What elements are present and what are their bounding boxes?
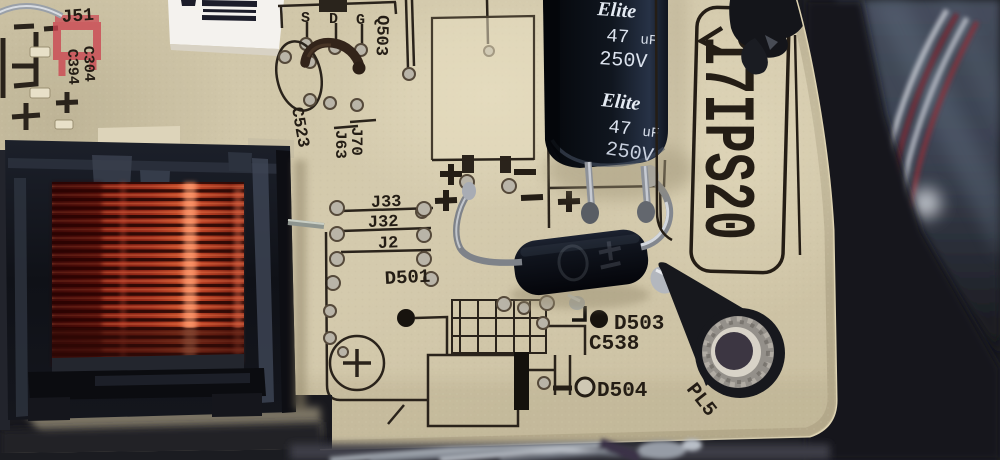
svg-text:D501: D501 xyxy=(384,266,431,290)
svg-text:250V: 250V xyxy=(599,48,649,74)
svg-text:Elite: Elite xyxy=(599,89,641,115)
svg-text:J2: J2 xyxy=(378,234,399,254)
svg-text:G: G xyxy=(356,12,365,29)
svg-text:Q503: Q503 xyxy=(371,15,391,56)
svg-text:J33: J33 xyxy=(371,193,402,213)
svg-text:J32: J32 xyxy=(368,213,399,233)
svg-text:C394: C394 xyxy=(63,49,81,86)
svg-text:J51: J51 xyxy=(61,6,95,28)
svg-text:S: S xyxy=(301,10,310,27)
svg-text:Elite: Elite xyxy=(596,0,637,23)
svg-text:C538: C538 xyxy=(589,333,639,356)
svg-text:D504: D504 xyxy=(597,380,647,403)
svg-text:J63: J63 xyxy=(331,130,349,159)
svg-text:D: D xyxy=(329,11,338,28)
